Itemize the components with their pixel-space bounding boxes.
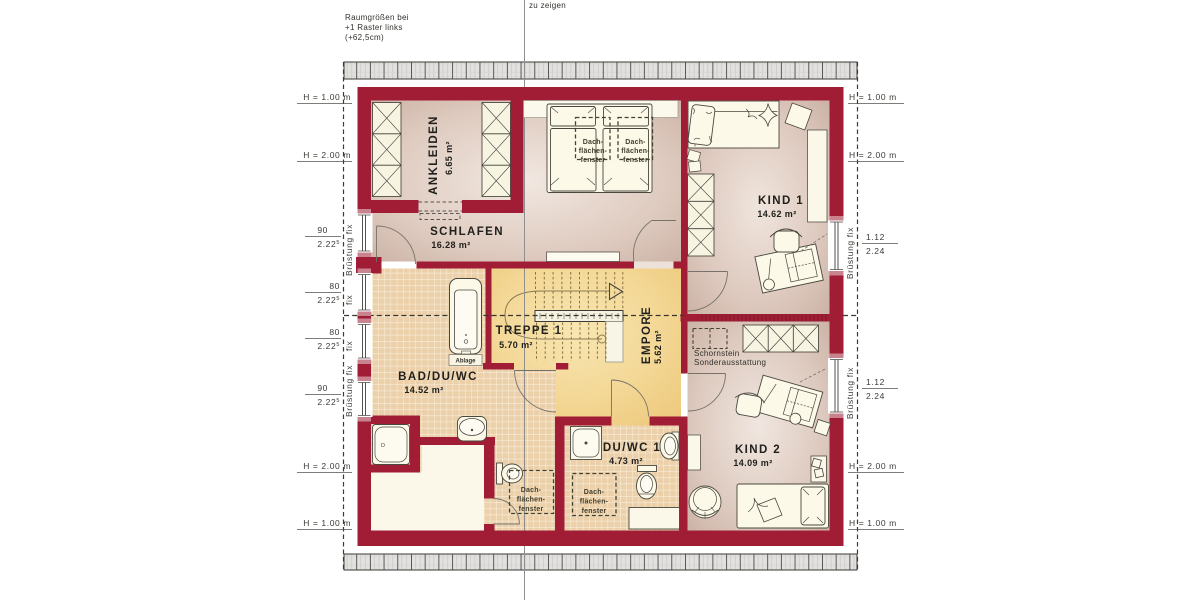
svg-text:Sonderausstattung: Sonderausstattung — [694, 358, 766, 367]
svg-text:2.24: 2.24 — [866, 391, 885, 401]
svg-text:Brüstung fix: Brüstung fix — [845, 227, 855, 279]
svg-text:EMPORE: EMPORE — [641, 306, 653, 364]
svg-text:Dach-: Dach- — [583, 139, 604, 146]
svg-text:Dach-: Dach- — [625, 139, 646, 146]
svg-text:90: 90 — [317, 383, 328, 393]
svg-text:TREPPE 1: TREPPE 1 — [496, 325, 563, 337]
svg-text:flächen-: flächen- — [621, 148, 650, 155]
svg-text:2.24: 2.24 — [866, 246, 885, 256]
svg-text:H = 1.00 m: H = 1.00 m — [849, 92, 897, 102]
svg-text:5.70 m²: 5.70 m² — [499, 340, 533, 350]
svg-text:H = 1.00 m: H = 1.00 m — [849, 518, 897, 528]
svg-text:14.52 m²: 14.52 m² — [404, 385, 443, 395]
svg-text:6.65 m²: 6.65 m² — [444, 141, 454, 175]
svg-text:zu zeigen: zu zeigen — [529, 1, 566, 10]
svg-text:fenster: fenster — [581, 157, 606, 164]
svg-text:D: D — [381, 443, 385, 449]
svg-text:H = 2.00 m: H = 2.00 m — [849, 150, 897, 160]
svg-text:80: 80 — [329, 281, 340, 291]
svg-text:BAD/DU/WC: BAD/DU/WC — [398, 371, 478, 383]
svg-text:DU/WC 1: DU/WC 1 — [603, 442, 661, 454]
svg-text:Brüstung fix: Brüstung fix — [845, 367, 855, 419]
svg-text:fenster: fenster — [582, 508, 607, 515]
svg-text:fix: fix — [344, 295, 354, 305]
svg-text:Brüstung fix: Brüstung fix — [344, 365, 354, 417]
svg-text:H = 1.00 m: H = 1.00 m — [303, 518, 351, 528]
svg-text:flächen-: flächen- — [579, 148, 608, 155]
svg-text:1.12: 1.12 — [866, 377, 885, 387]
svg-text:fenster: fenster — [519, 506, 544, 513]
svg-text:KIND 1: KIND 1 — [758, 195, 804, 207]
svg-text:flächen-: flächen- — [517, 497, 546, 504]
svg-text:14.09 m²: 14.09 m² — [733, 458, 772, 468]
svg-text:Ablage: Ablage — [455, 359, 476, 365]
svg-text:4.73 m²: 4.73 m² — [609, 456, 643, 466]
svg-text:fenster: fenster — [623, 157, 648, 164]
svg-text:Dach-: Dach- — [521, 487, 542, 494]
svg-text:16.28 m²: 16.28 m² — [431, 240, 470, 250]
svg-text:H = 2.00 m: H = 2.00 m — [849, 461, 897, 471]
svg-text:H = 1.00 m: H = 1.00 m — [303, 92, 351, 102]
svg-text:KIND 2: KIND 2 — [735, 444, 781, 456]
svg-text:Dach-: Dach- — [584, 489, 605, 496]
svg-text:Schornstein: Schornstein — [694, 349, 740, 358]
svg-text:14.62 m²: 14.62 m² — [757, 209, 796, 219]
svg-text:80: 80 — [329, 327, 340, 337]
svg-text:1.12: 1.12 — [866, 232, 885, 242]
svg-text:5.62 m²: 5.62 m² — [653, 330, 663, 364]
svg-text:Raumgrößen bei: Raumgrößen bei — [345, 13, 409, 22]
svg-text:Brüstung fix: Brüstung fix — [344, 224, 354, 276]
svg-text:ANKLEIDEN: ANKLEIDEN — [428, 115, 440, 195]
svg-text:H = 2.00 m: H = 2.00 m — [303, 150, 351, 160]
svg-text:+1 Raster links: +1 Raster links — [345, 23, 403, 32]
svg-text:(+62,5cm): (+62,5cm) — [345, 33, 384, 42]
svg-text:SCHLAFEN: SCHLAFEN — [430, 226, 504, 238]
svg-text:H = 2.00 m: H = 2.00 m — [303, 461, 351, 471]
svg-text:fix: fix — [344, 341, 354, 351]
svg-text:90: 90 — [317, 225, 328, 235]
svg-text:flächen-: flächen- — [580, 499, 609, 506]
